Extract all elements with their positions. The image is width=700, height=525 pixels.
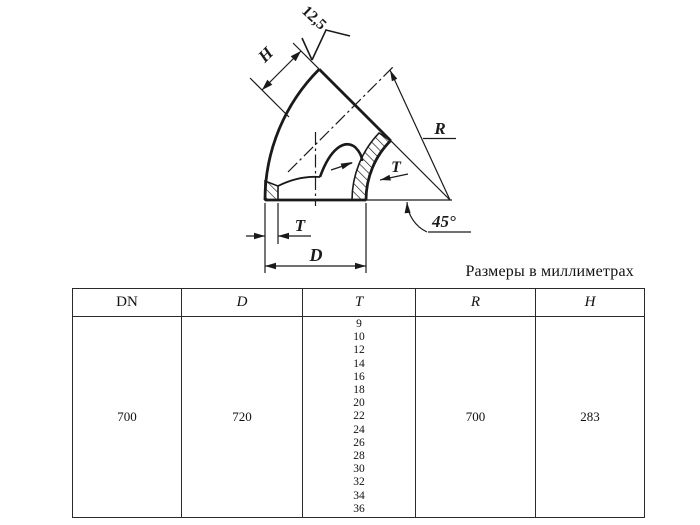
- extension-lines: [250, 43, 452, 273]
- bore-edge-curve: [278, 177, 320, 186]
- roughness-mark: 12,5: [298, 2, 350, 60]
- roughness-label: 12,5: [298, 2, 330, 33]
- h-label: H: [254, 43, 278, 67]
- table-header-row: DN D T R H: [73, 289, 645, 317]
- r-label: R: [433, 119, 445, 138]
- col-header-d: D: [182, 289, 303, 317]
- col-header-t: T: [303, 289, 416, 317]
- t-bottom-label: T: [295, 216, 306, 235]
- dimensions-table: DN D T R H 700 720 910121416182022242628…: [72, 288, 645, 518]
- table-row: 700 720 91012141618202224262830323436 70…: [73, 317, 645, 518]
- drawing-sheet: H 12,5 R T 45°: [0, 0, 700, 525]
- cell-d: 720: [182, 317, 303, 518]
- angle-label: 45°: [431, 212, 456, 231]
- cell-r: 700: [416, 317, 536, 518]
- dimension-angle: 45°: [405, 202, 471, 232]
- dimension-h: H: [254, 43, 301, 90]
- dimension-d: D: [265, 245, 366, 269]
- col-header-r: R: [416, 289, 536, 317]
- cell-h: 283: [536, 317, 645, 518]
- elbow-45-drawing: H 12,5 R T 45°: [0, 0, 700, 286]
- cell-dn: 700: [73, 317, 182, 518]
- dimension-r: R: [390, 70, 456, 200]
- table-caption: Размеры в миллиметрах: [465, 263, 634, 281]
- cell-t-values: 91012141618202224262830323436: [303, 317, 416, 518]
- col-header-dn: DN: [73, 289, 182, 317]
- left-wall-section-hatch: [265, 181, 278, 200]
- d-label: D: [309, 245, 323, 265]
- inclined-end-wall-section-hatch: [352, 133, 391, 200]
- t-section-label: T: [391, 159, 402, 176]
- col-header-h: H: [536, 289, 645, 317]
